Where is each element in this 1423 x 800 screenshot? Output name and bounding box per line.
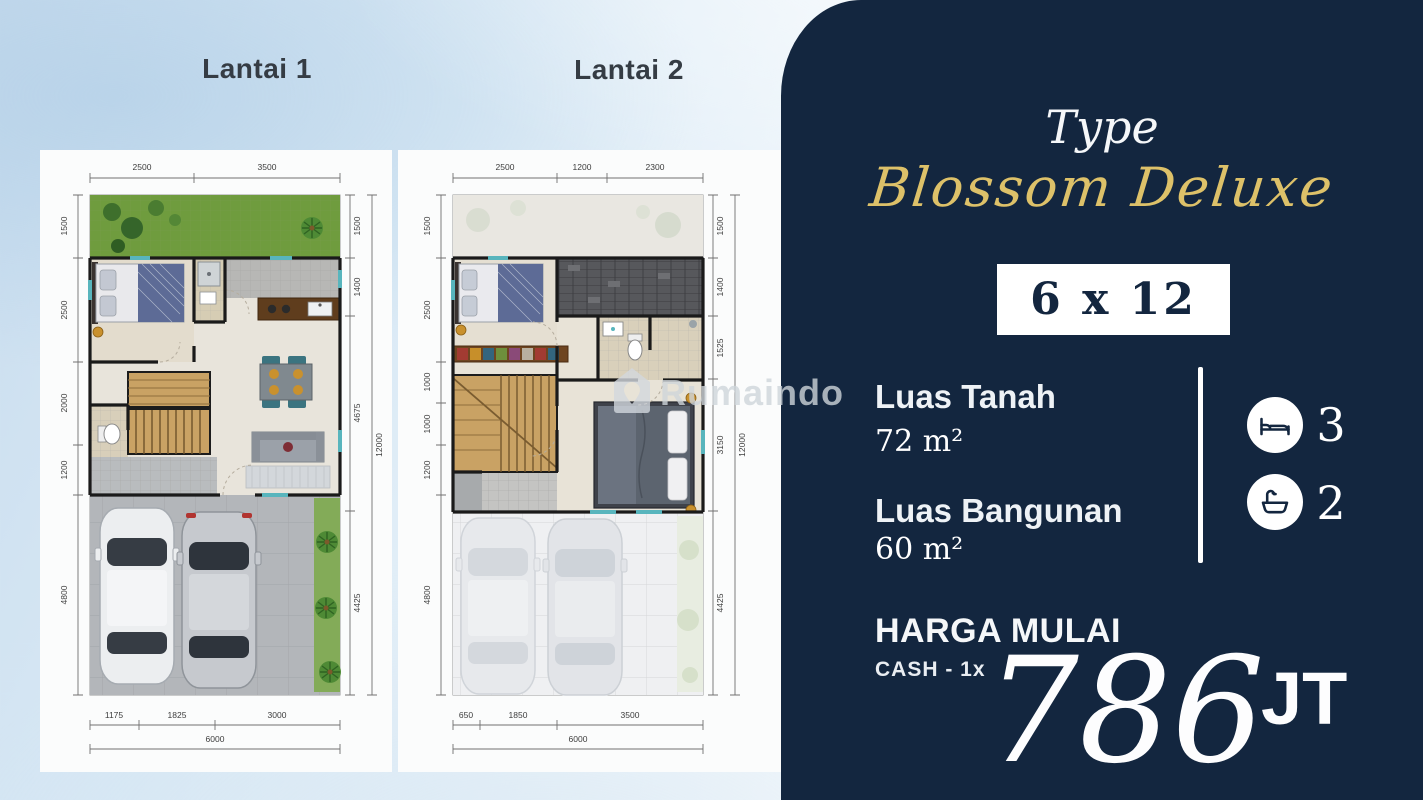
watermark-brand: Rumaindo [660, 372, 844, 414]
svg-text:4800: 4800 [59, 585, 69, 604]
info-panel: Type Blossom Deluxe 6 x 12 Luas Tanah 72… [781, 0, 1423, 800]
type-name: Blossom Deluxe [778, 156, 1423, 219]
land-area-value: 72 m² [875, 424, 963, 459]
svg-text:1500: 1500 [352, 216, 362, 235]
building-area-label: Luas Bangunan [875, 492, 1123, 530]
svg-text:2500: 2500 [496, 162, 515, 172]
price-value: 786 [986, 638, 1236, 784]
stairs [128, 372, 210, 454]
size-value: 6 x 12 [1030, 274, 1197, 325]
svg-text:1400: 1400 [715, 277, 725, 296]
svg-text:1200: 1200 [573, 162, 592, 172]
svg-text:1000: 1000 [422, 414, 432, 433]
svg-text:1500: 1500 [59, 216, 69, 235]
toilet [98, 424, 120, 444]
floorplan-lantai-2: 2500 1200 2300 1500 2500 1000 1000 1200 … [398, 150, 782, 772]
car-ghost-right [543, 519, 627, 695]
svg-text:3500: 3500 [258, 162, 277, 172]
svg-text:3150: 3150 [715, 435, 725, 454]
bedroom-count: 3 [1309, 402, 1353, 448]
svg-text:2500: 2500 [133, 162, 152, 172]
svg-text:1400: 1400 [352, 277, 362, 296]
stairs [453, 375, 557, 472]
svg-text:1850: 1850 [509, 710, 528, 720]
roof-tiles [557, 258, 703, 316]
svg-text:4800: 4800 [422, 585, 432, 604]
svg-text:4425: 4425 [352, 593, 362, 612]
svg-text:650: 650 [459, 710, 473, 720]
vertical-divider [1198, 367, 1203, 563]
plan2-title: Lantai 2 [439, 54, 819, 86]
size-badge: 6 x 12 [997, 264, 1230, 335]
bookshelf [453, 346, 568, 362]
svg-text:6000: 6000 [569, 734, 588, 744]
svg-text:12000: 12000 [737, 433, 747, 457]
svg-text:1825: 1825 [168, 710, 187, 720]
rumaindo-house-icon [612, 366, 652, 419]
svg-text:4425: 4425 [715, 593, 725, 612]
svg-text:3500: 3500 [621, 710, 640, 720]
car-white [95, 508, 179, 684]
void-strip [453, 195, 703, 258]
land-area-label: Luas Tanah [875, 378, 1056, 416]
svg-text:3000: 3000 [268, 710, 287, 720]
building-area-value: 60 m² [875, 532, 963, 567]
flyer-root: { "plans": [ { "title": "Lantai 1", "dim… [0, 0, 1423, 800]
svg-text:2300: 2300 [646, 162, 665, 172]
svg-text:1500: 1500 [422, 216, 432, 235]
payment-method-label: CASH - 1x [875, 658, 986, 682]
svg-text:1000: 1000 [422, 372, 432, 391]
svg-text:12000: 12000 [374, 433, 384, 457]
svg-text:4675: 4675 [352, 403, 362, 422]
svg-text:1200: 1200 [422, 460, 432, 479]
car-ghost-left [456, 518, 540, 694]
floorplan-lantai-1: 2500 3500 1500 2500 2000 1200 4800 1500 … [40, 150, 392, 772]
svg-text:1500: 1500 [715, 216, 725, 235]
car-silver [177, 512, 261, 688]
svg-text:2000: 2000 [59, 393, 69, 412]
bathroom-upper [194, 258, 225, 322]
svg-text:2500: 2500 [422, 300, 432, 319]
plan1-title: Lantai 1 [81, 53, 433, 85]
svg-text:6000: 6000 [206, 734, 225, 744]
svg-text:1525: 1525 [715, 338, 725, 357]
type-label: Type [781, 100, 1423, 154]
kitchen-counter [258, 298, 340, 320]
svg-text:2500: 2500 [59, 300, 69, 319]
svg-text:1200: 1200 [59, 460, 69, 479]
garden [90, 195, 340, 258]
dining-set [260, 356, 312, 408]
bathtub-icon [1247, 474, 1303, 530]
bathroom-count: 2 [1309, 480, 1353, 526]
watermark: Rumaindo [612, 366, 844, 419]
living-room [246, 432, 330, 488]
svg-text:1175: 1175 [105, 710, 124, 720]
price-unit: JT [1261, 662, 1347, 736]
bed-icon [1247, 397, 1303, 453]
